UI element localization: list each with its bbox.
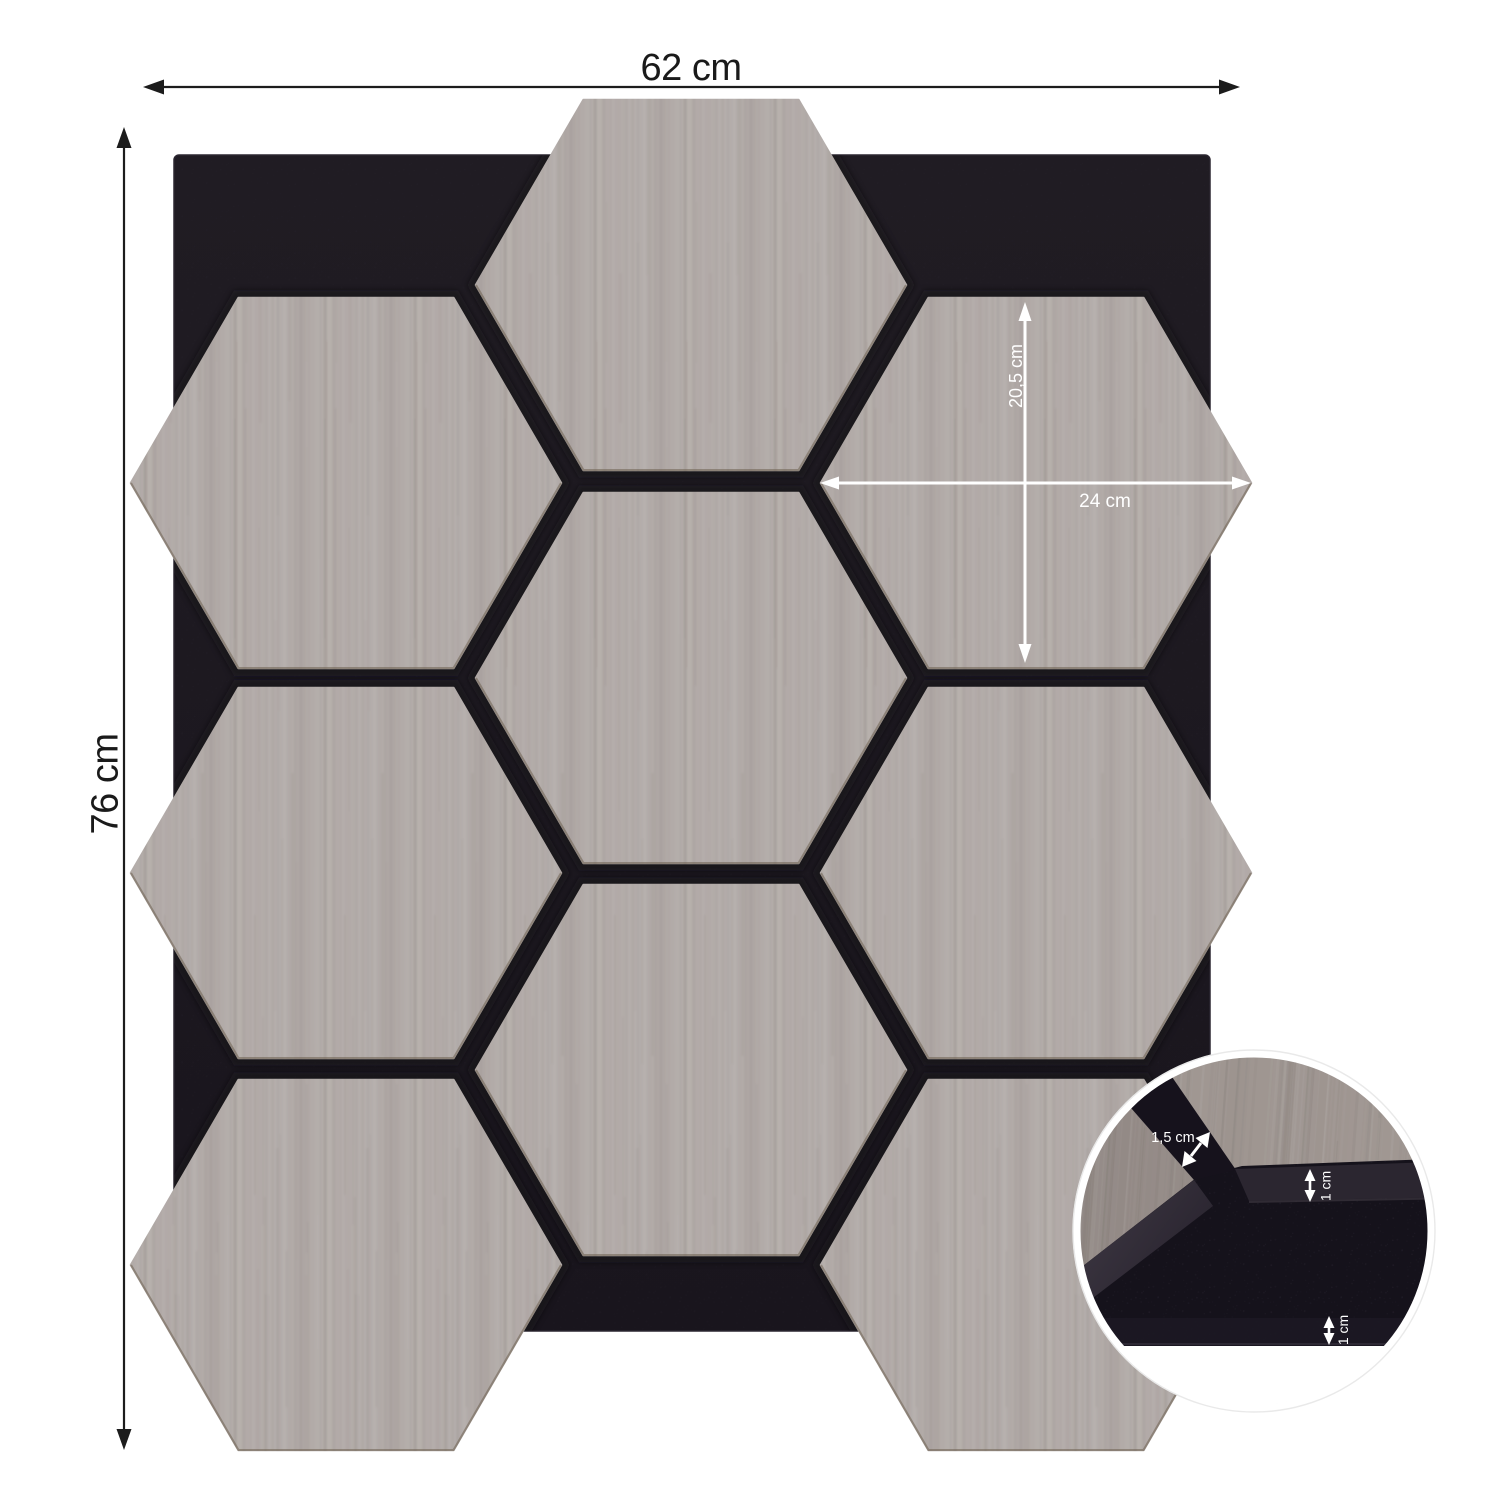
svg-text:20,5 cm: 20,5 cm: [1006, 344, 1026, 408]
svg-text:1,5 cm: 1,5 cm: [1151, 1130, 1195, 1146]
svg-text:24 cm: 24 cm: [1079, 491, 1131, 512]
svg-text:1 cm: 1 cm: [1335, 1315, 1351, 1345]
svg-text:76 cm: 76 cm: [85, 734, 127, 835]
svg-text:1 cm: 1 cm: [1318, 1171, 1334, 1201]
svg-text:62 cm: 62 cm: [641, 47, 742, 89]
